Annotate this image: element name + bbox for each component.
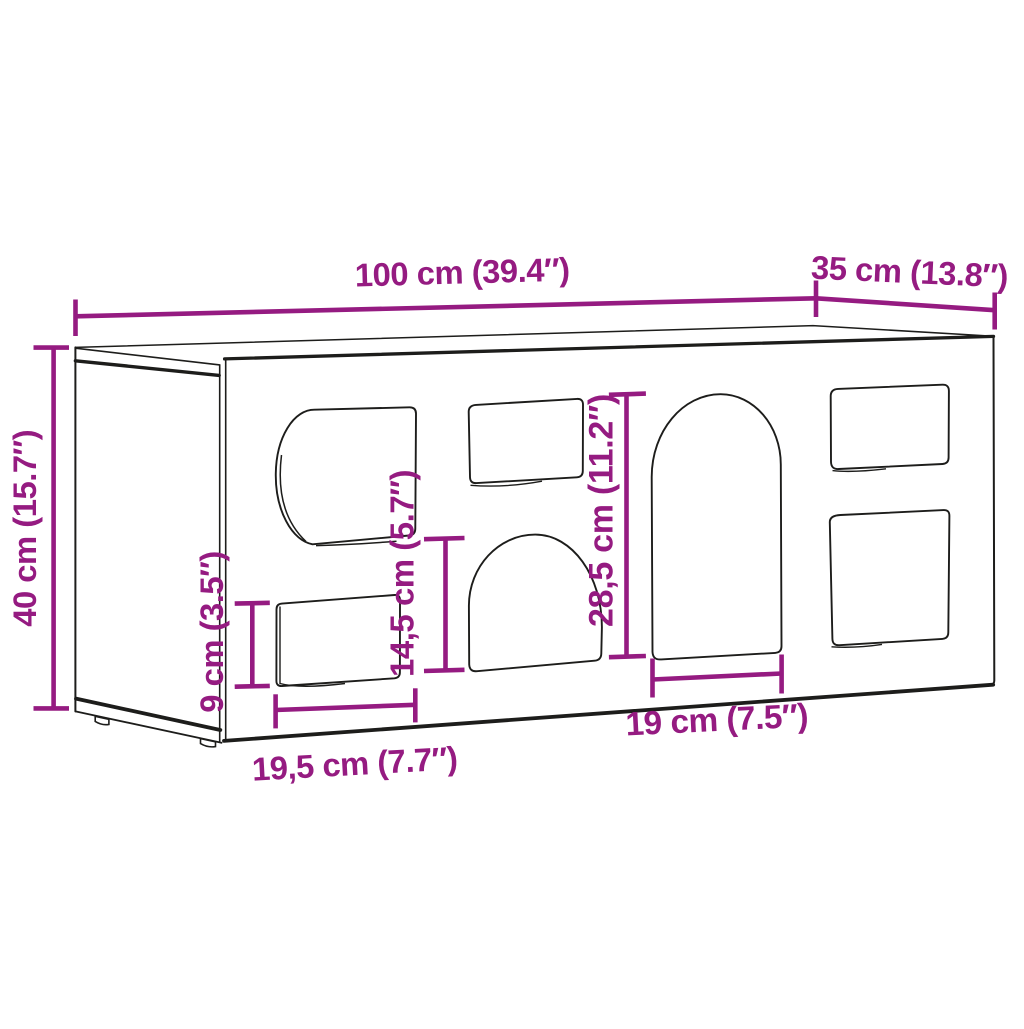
svg-text:9 cm (3.5″): 9 cm (3.5″)	[193, 551, 230, 713]
svg-text:40 cm (15.7″): 40 cm (15.7″)	[6, 430, 43, 627]
svg-text:100 cm (39.4″): 100 cm (39.4″)	[354, 251, 570, 294]
svg-text:28,5 cm (11.2″): 28,5 cm (11.2″)	[583, 394, 621, 627]
svg-text:14,5 cm (5.7″): 14,5 cm (5.7″)	[384, 470, 421, 677]
